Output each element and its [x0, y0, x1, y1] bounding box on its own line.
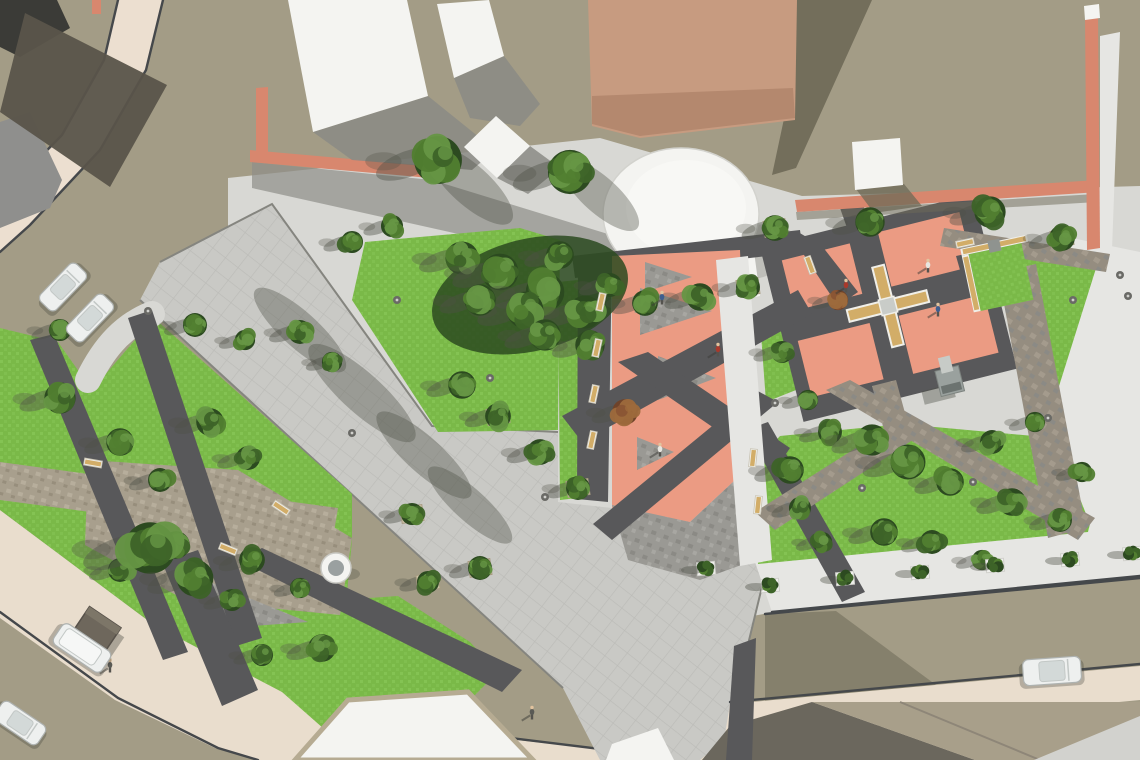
tree-highlight	[480, 290, 490, 300]
tree-shadow-tip	[896, 538, 914, 547]
tree-highlight	[748, 280, 755, 287]
shrub-foliage	[767, 578, 776, 587]
tree-shadow-tip	[72, 540, 111, 560]
tree-shadow-tip	[444, 564, 462, 573]
tree-shadow-tip	[358, 222, 375, 230]
tree-highlight	[1035, 416, 1041, 422]
tree-shadow-tip	[213, 556, 233, 566]
lamp	[1116, 271, 1124, 279]
tree-highlight	[808, 394, 814, 400]
tree-highlight	[462, 377, 470, 385]
tree-shadow-tip	[12, 393, 36, 405]
tree-canopy-blob	[326, 358, 334, 366]
lamp-top	[1072, 299, 1075, 302]
tree-highlight	[498, 408, 506, 416]
tree-shadow-tip	[777, 397, 792, 405]
lamp-top	[1127, 295, 1130, 298]
tree-shadow-tip	[264, 328, 282, 337]
wall-post-west	[92, 0, 101, 14]
tree-shadow-tip	[574, 281, 592, 290]
tree-highlight	[232, 593, 239, 600]
lamp-top	[351, 432, 354, 435]
tree-highlight	[462, 248, 472, 258]
tree-shadow-tip	[586, 408, 606, 418]
tree-shadow-tip	[825, 217, 847, 228]
lamp	[393, 296, 401, 304]
person-head	[926, 259, 929, 262]
tree-highlight	[884, 524, 892, 532]
tree-highlight	[908, 451, 919, 462]
person-torso	[844, 282, 849, 288]
tree-shadow-tip	[318, 238, 335, 246]
tree-highlight	[700, 289, 708, 297]
lamp	[771, 399, 779, 407]
shrub-foliage	[845, 573, 854, 582]
tree-highlight	[545, 280, 557, 292]
tree-shadow-tip	[606, 299, 626, 309]
car-cabin	[1039, 660, 1066, 682]
tree-shadow-tip	[497, 330, 521, 342]
person-torso	[530, 709, 535, 715]
tree-shadow-tip	[444, 266, 472, 280]
tree-shadow-tip	[518, 251, 539, 262]
person-head	[844, 279, 847, 282]
shrub-foliage	[1062, 555, 1071, 564]
tree-highlight	[645, 295, 653, 303]
tree-shadow-tip	[956, 438, 974, 447]
lamp	[1069, 296, 1077, 304]
tree-highlight	[1060, 513, 1067, 520]
tree-shadow-tip	[269, 585, 284, 593]
cross-plaza-center	[878, 296, 897, 315]
tree-highlight	[982, 554, 988, 560]
plaza-aerial-svg: Aerial 3D architectural render of an urb…	[0, 0, 1140, 760]
person-torso	[936, 306, 941, 312]
lamp	[144, 307, 152, 315]
shrub-foliage	[989, 563, 998, 572]
tree-highlight	[412, 507, 419, 514]
lamp-top	[1119, 274, 1122, 277]
tree-highlight	[500, 261, 511, 272]
shrub-foliage	[1125, 546, 1134, 555]
tree-highlight	[870, 213, 879, 222]
tree-highlight	[322, 640, 330, 648]
tree-highlight	[838, 294, 844, 300]
tree-shadow-tip	[791, 539, 806, 547]
tree-shadow-tip	[378, 510, 395, 518]
tree-highlight	[210, 414, 218, 422]
tree-shadow-tip	[807, 297, 822, 305]
tree-shadow-tip	[542, 484, 560, 493]
tree-highlight	[252, 552, 260, 560]
lamp	[858, 484, 866, 492]
tree-highlight	[60, 323, 67, 330]
tree-shadow-tip	[280, 644, 301, 655]
tree-highlight	[195, 318, 202, 325]
tree-shadow-tip	[503, 165, 537, 182]
tree-highlight	[560, 247, 568, 255]
tree-highlight	[625, 404, 633, 412]
tree-highlight	[195, 567, 206, 578]
tree-highlight	[1012, 494, 1020, 502]
tree-highlight	[540, 444, 548, 452]
tree-highlight	[1062, 230, 1070, 238]
tree-highlight	[610, 278, 617, 285]
person-torso	[716, 346, 721, 352]
tree-highlight	[782, 345, 789, 352]
tree-shadow-tip	[394, 578, 411, 586]
tree-highlight	[872, 430, 882, 440]
tree-shadow-tip	[855, 456, 882, 469]
tree-shadow-tip	[124, 476, 142, 485]
lamp	[1124, 292, 1132, 300]
tree-highlight	[830, 425, 837, 432]
tree-shadow-tip	[214, 337, 229, 345]
tree-highlight	[245, 334, 251, 340]
tree-highlight	[800, 501, 807, 508]
tree-highlight	[990, 202, 1000, 212]
shrub-foliage	[918, 570, 927, 579]
tree-highlight	[300, 582, 306, 588]
tree-highlight	[150, 532, 166, 548]
lamp-top	[147, 310, 150, 313]
lamp	[486, 374, 494, 382]
tree-shadow-tip	[78, 438, 99, 449]
tree-highlight	[578, 481, 585, 488]
person-head	[660, 291, 663, 294]
tree-shadow-tip	[736, 224, 756, 234]
person-head	[936, 303, 939, 306]
tree-highlight	[262, 648, 269, 655]
bench	[754, 496, 763, 515]
tree-shadow-tip	[459, 412, 479, 422]
tree-shadow-tip	[970, 498, 991, 509]
tree-highlight	[300, 325, 307, 332]
tree-shadow-tip	[766, 504, 783, 512]
tree-highlight	[822, 536, 828, 542]
tree-shadow-tip	[412, 253, 437, 266]
lamp-top	[774, 402, 777, 405]
person-head	[716, 343, 719, 346]
tree-shadow-tip	[301, 359, 316, 367]
tree-shadow-tip	[842, 528, 863, 539]
tree-highlight	[790, 462, 798, 470]
lamp	[1044, 414, 1052, 422]
tree-shadow-tip	[139, 572, 167, 586]
tree-highlight	[480, 561, 487, 568]
tree-highlight	[160, 473, 167, 480]
tree-highlight	[120, 434, 128, 442]
tree-shadow-tip	[748, 348, 765, 356]
tree-shadow-tip	[908, 478, 929, 489]
tree-highlight	[332, 356, 338, 362]
tree-shadow-tip	[1024, 516, 1042, 525]
tree-shadow-tip	[501, 448, 521, 458]
lamp-top	[1047, 417, 1050, 420]
person-torso	[660, 294, 665, 300]
tree-shadow-tip	[365, 152, 401, 170]
lamp	[969, 478, 977, 486]
shrub-foliage	[702, 561, 711, 570]
tree-highlight	[352, 235, 359, 242]
tree-highlight	[570, 159, 583, 172]
tree-shadow-tip	[1004, 419, 1019, 427]
lamp-top	[544, 496, 547, 499]
tree-shadow-tip	[168, 418, 189, 429]
lamp-top	[396, 299, 399, 302]
person-torso	[658, 446, 663, 452]
tree-shadow-tip	[432, 295, 456, 307]
tree-shadow-tip	[824, 435, 848, 447]
tree-highlight	[248, 451, 255, 458]
lamp-top	[489, 377, 492, 380]
tree-highlight	[438, 145, 453, 160]
tree-highlight	[525, 299, 536, 310]
tree-highlight	[775, 220, 783, 228]
person-torso	[926, 262, 931, 268]
tree-highlight	[585, 302, 595, 312]
tree-highlight	[950, 474, 958, 482]
tree-shadow-tip	[794, 428, 812, 437]
tree-shadow-tip	[420, 381, 441, 392]
tree-shadow-tip	[712, 283, 730, 292]
car	[1018, 656, 1085, 689]
site-plan-render: Aerial 3D architectural render of an urb…	[0, 0, 1140, 760]
tree-canopy-blob	[294, 585, 301, 592]
tree-highlight	[60, 388, 70, 398]
tree-shadow-tip	[942, 207, 966, 219]
tree-shadow-tip	[159, 321, 177, 330]
tree-shadow-tip	[1051, 469, 1066, 477]
bench	[749, 449, 758, 468]
tree-shadow-tip	[26, 326, 43, 334]
person-head	[530, 706, 533, 709]
tree-highlight	[392, 219, 399, 226]
tree-highlight	[992, 435, 999, 442]
tree-shadow-tip	[951, 557, 966, 565]
tree-shadow-tip	[228, 651, 245, 659]
tree-shadow-tip	[1023, 234, 1043, 244]
wall-east	[1085, 12, 1100, 250]
lamp	[541, 493, 549, 501]
tree-shadow-tip	[212, 454, 230, 463]
lamp-top	[861, 487, 864, 490]
wall-north-post	[256, 87, 268, 158]
person-head	[658, 443, 661, 446]
building-white-cube-northeast	[852, 138, 903, 190]
lamp-top	[972, 481, 975, 484]
lamp	[348, 429, 356, 437]
tree-highlight	[428, 575, 435, 582]
tree-highlight	[1082, 466, 1088, 472]
tree-highlight	[932, 535, 939, 542]
tree-highlight	[545, 325, 555, 335]
